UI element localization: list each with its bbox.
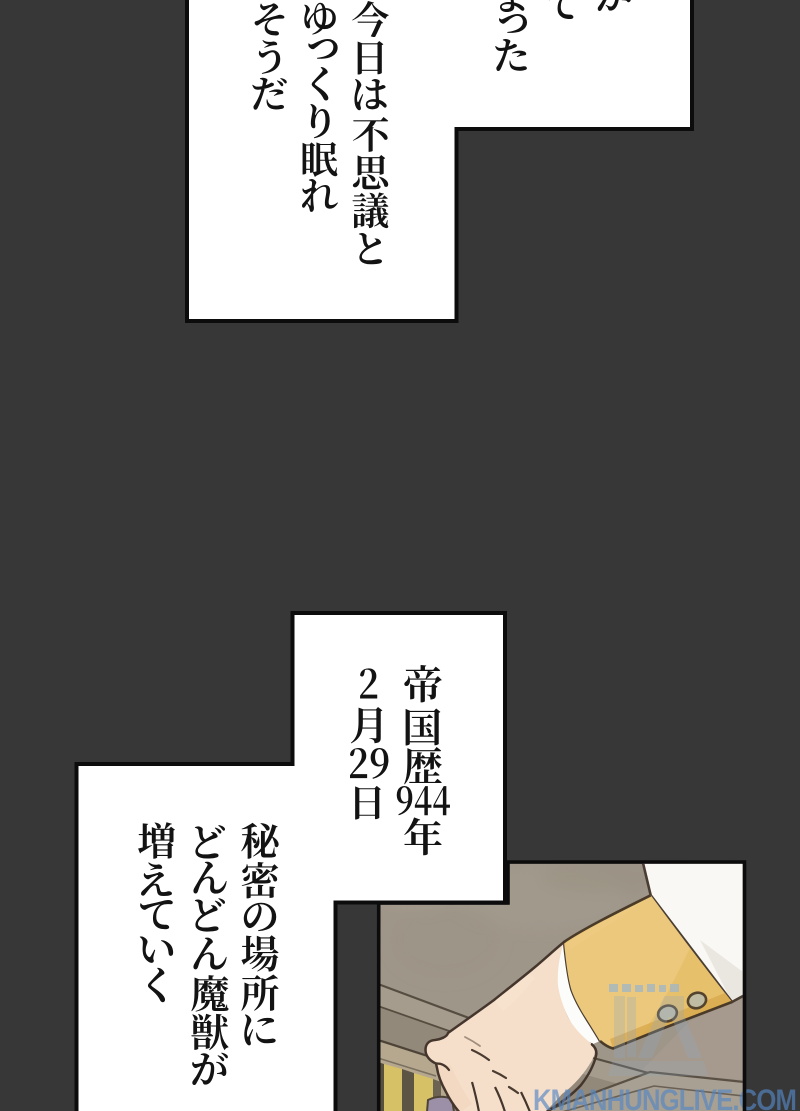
- svg-text:KMANHUNGLIVE.COM: KMANHUNGLIVE.COM: [533, 1084, 796, 1111]
